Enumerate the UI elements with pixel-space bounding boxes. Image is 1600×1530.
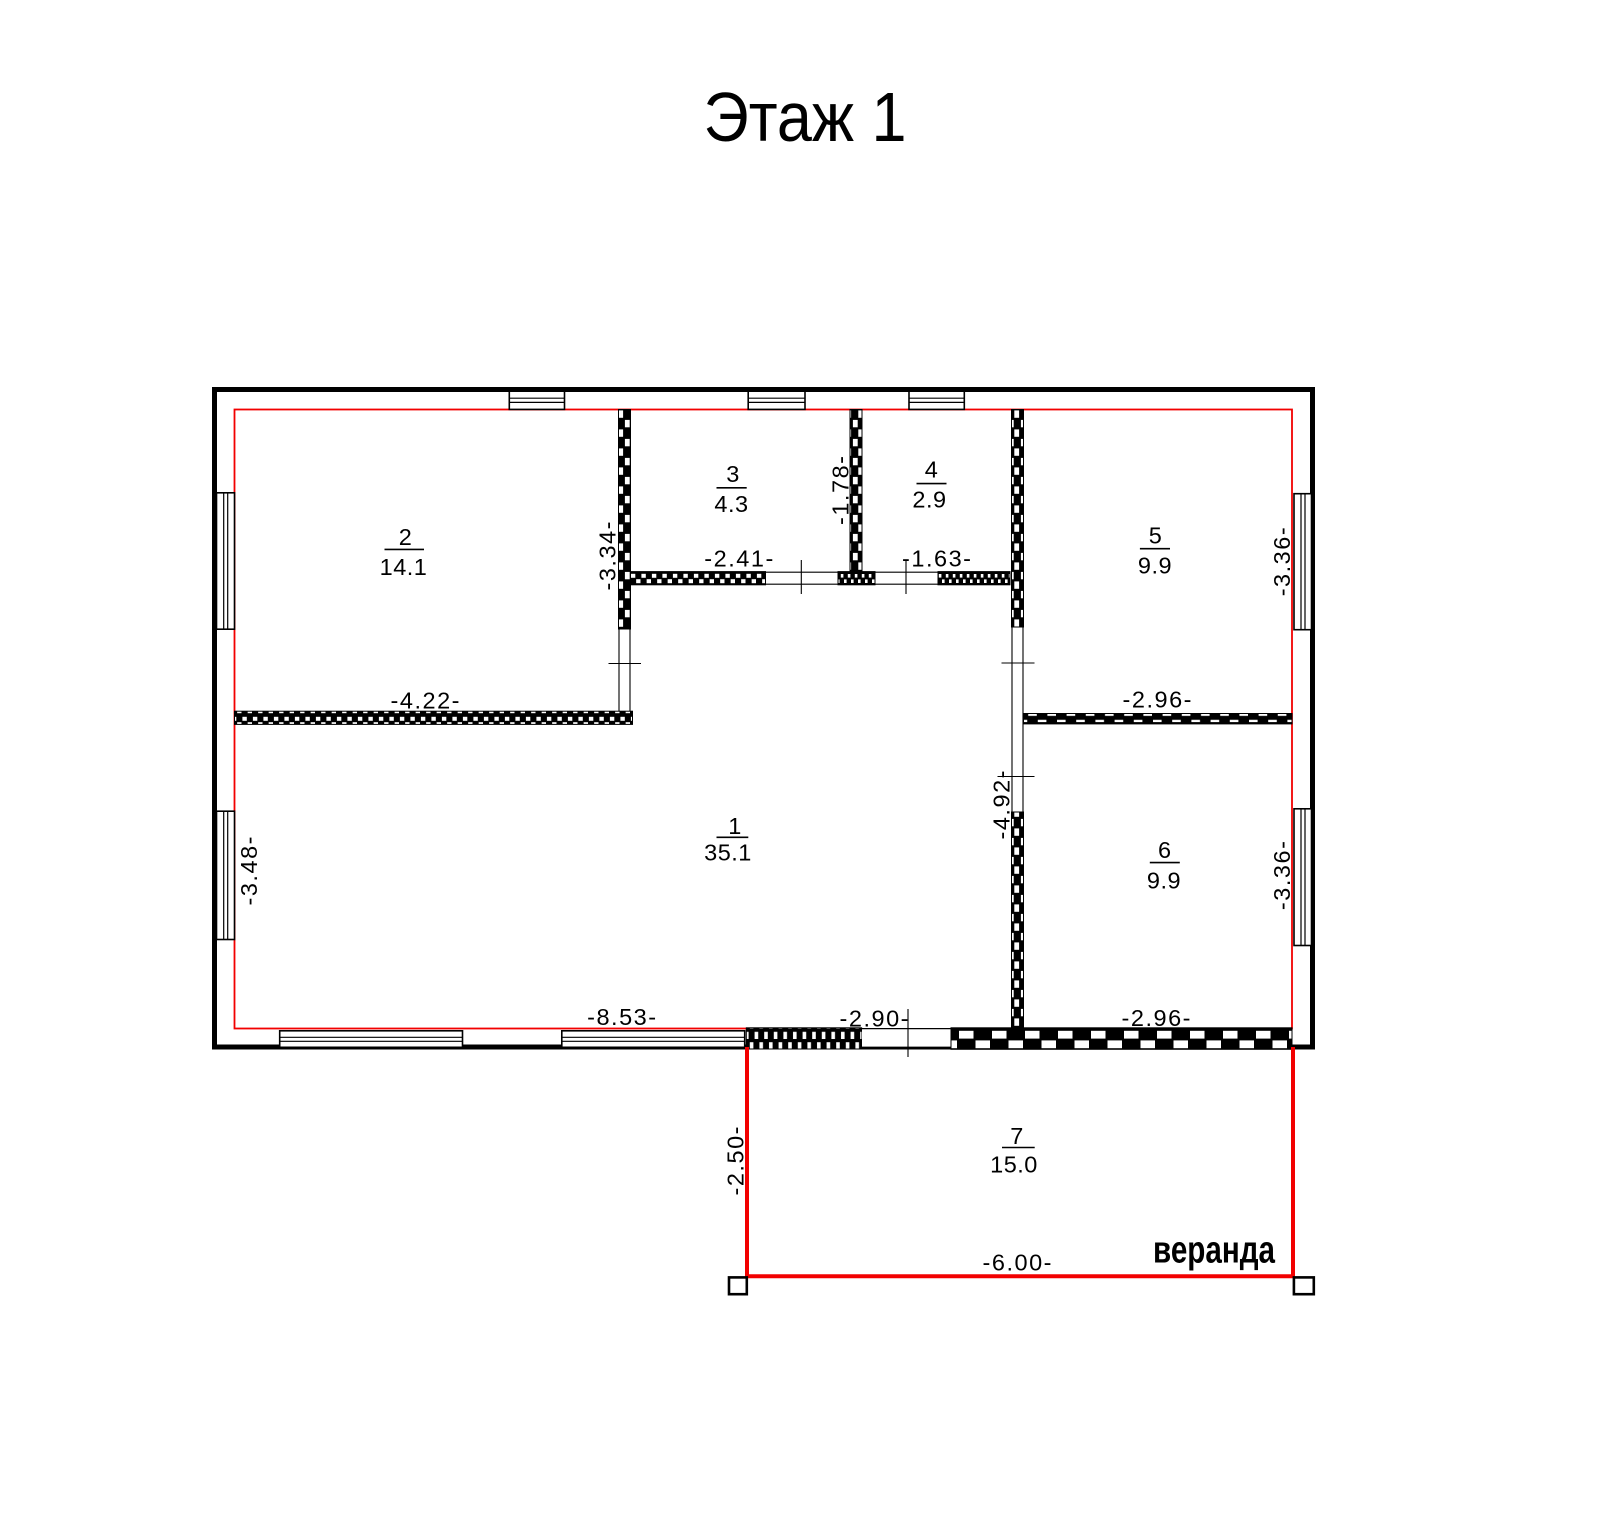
svg-text:15.0: 15.0 [990,1152,1038,1178]
svg-text:-1.63-: -1.63- [902,546,971,572]
svg-text:6: 6 [1158,837,1172,863]
svg-text:-3.36-: -3.36- [1269,527,1295,596]
svg-text:-4.22-: -4.22- [391,688,460,714]
svg-text:5: 5 [1149,523,1163,549]
svg-text:14.1: 14.1 [380,554,428,580]
svg-text:4: 4 [925,457,939,483]
svg-text:-6.00-: -6.00- [983,1250,1052,1276]
svg-text:35.1: 35.1 [704,840,752,866]
svg-text:-3.34-: -3.34- [595,522,621,591]
svg-text:-2.41-: -2.41- [704,546,773,572]
svg-text:Этаж 1: Этаж 1 [704,78,907,156]
svg-text:4.3: 4.3 [714,491,748,517]
svg-text:-2.90-: -2.90- [840,1006,909,1032]
svg-text:веранда: веранда [1153,1230,1276,1272]
svg-text:-1.78-: -1.78- [828,456,854,525]
svg-text:2.9: 2.9 [912,487,946,513]
svg-text:3: 3 [726,461,740,487]
svg-text:-8.53-: -8.53- [587,1004,656,1030]
svg-text:9.9: 9.9 [1138,553,1172,579]
svg-text:-2.50-: -2.50- [723,1127,749,1196]
svg-text:-3.36-: -3.36- [1269,841,1295,910]
svg-text:1: 1 [728,813,742,839]
svg-text:-2.96-: -2.96- [1122,1005,1191,1031]
svg-text:2: 2 [399,524,413,550]
svg-text:-2.96-: -2.96- [1123,687,1192,713]
svg-text:-3.48-: -3.48- [236,837,262,906]
svg-text:7: 7 [1010,1123,1024,1149]
svg-text:-4.92-: -4.92- [989,771,1015,840]
svg-text:9.9: 9.9 [1147,868,1181,894]
